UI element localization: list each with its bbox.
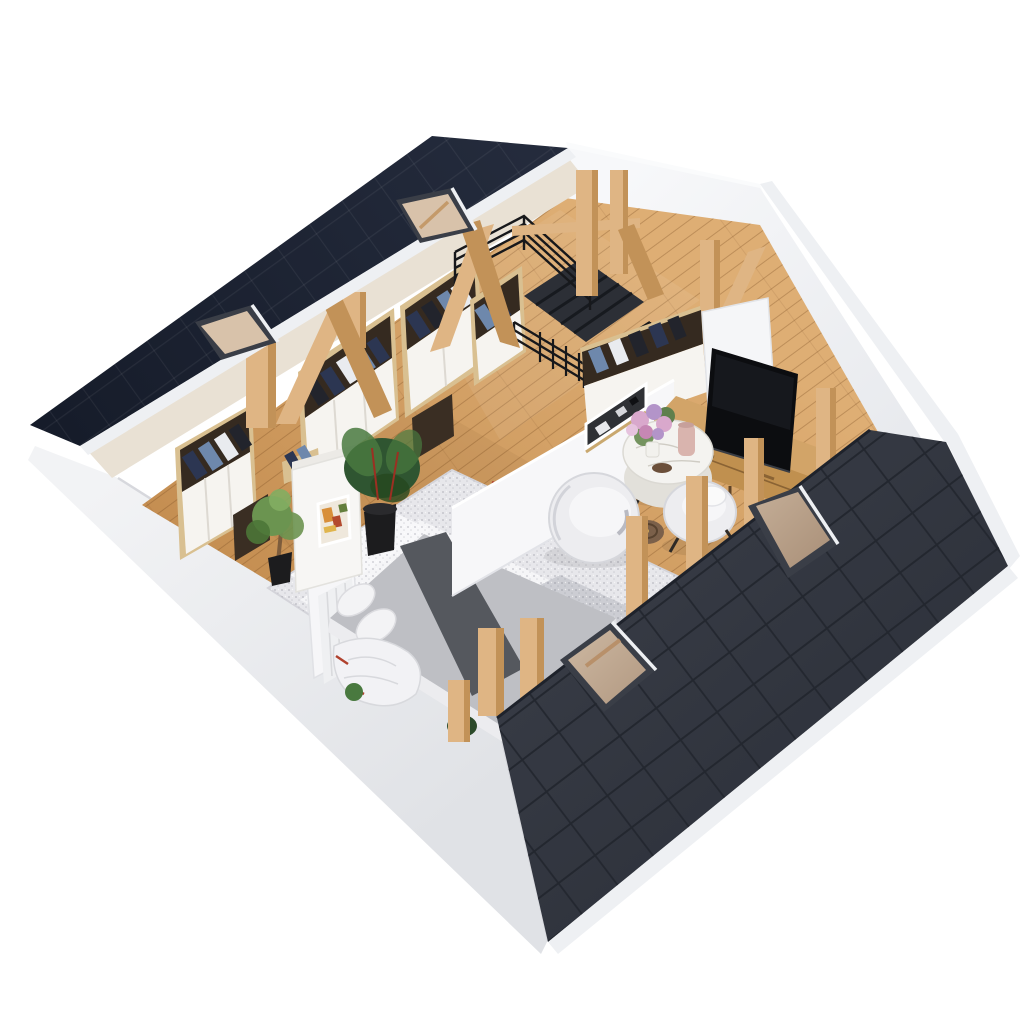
wood-post [478,628,504,716]
tree-foliage [269,489,291,511]
render-canvas: 3D isometric attic floor plan render wit… [0,0,1024,1024]
tree-foliage [276,512,304,540]
bouquet-flower [652,428,664,440]
wood-post [448,680,470,742]
pink-vase [678,424,695,456]
bouquet-flower [626,424,638,436]
pink-vase-top [678,422,694,428]
bird-figurine [652,463,672,473]
plant-pot-rim [363,503,397,515]
bouquet-flower [639,425,653,439]
tree-foliage [246,520,270,544]
bouquet-vase [646,442,659,457]
tiny-plant [345,683,363,701]
attic-3d-floorplan: 3D isometric attic floor plan render wit… [0,0,1024,1024]
wood-post [576,170,598,296]
wood-post [610,170,628,274]
art-shape-green [338,503,347,512]
